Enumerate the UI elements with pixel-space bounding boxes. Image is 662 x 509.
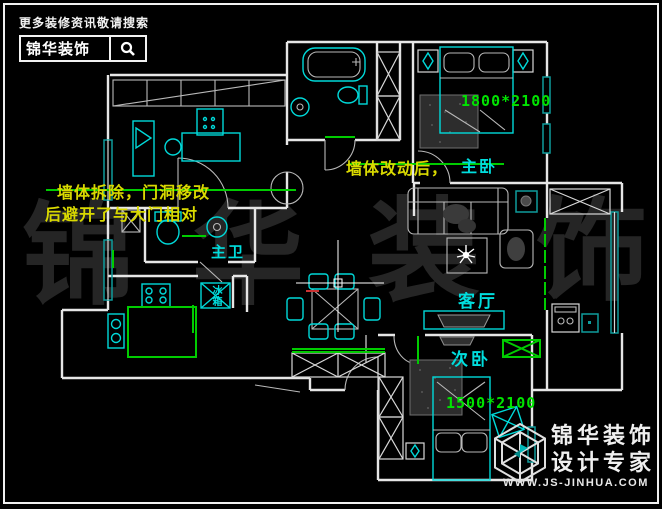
pillow (479, 53, 509, 72)
windows (104, 77, 618, 462)
tv-bedroom2 (440, 337, 474, 345)
search-logo-box: 锦华装饰 (19, 35, 147, 62)
dimension-second-bed: 1500*2100 (446, 394, 536, 412)
cube-logo-icon (488, 420, 552, 486)
bathroom-top (291, 48, 367, 116)
pillow (462, 433, 487, 452)
label-master-bathroom: 主卫 (211, 241, 245, 262)
chair (309, 274, 328, 289)
plant (457, 245, 475, 263)
label-fridge: 冰箱 (210, 285, 220, 307)
chair (364, 298, 380, 320)
bottom-slogan: 设计专家 (551, 445, 655, 477)
label-master-bedroom: 主卧 (461, 153, 497, 177)
label-living-room: 客厅 (458, 287, 498, 312)
entry (292, 353, 385, 377)
cad-floorplan-canvas[interactable]: 锦 华 装 饰 (0, 0, 662, 509)
new-wall-kitchen-island (128, 307, 196, 357)
pillow (444, 53, 474, 72)
stool (165, 139, 181, 155)
pillow (436, 433, 461, 452)
new-wall-shoe-cabinet (292, 349, 385, 352)
annotation-wall-change: 墙体改动后， (346, 155, 448, 179)
cooktop (142, 284, 170, 307)
annotation-demolish-line1: 墙体拆除，门洞移改 (57, 179, 210, 203)
top-logo-text: 锦华装饰 (21, 38, 109, 59)
top-tagline: 更多装修资讯敬请搜索 (19, 14, 149, 31)
window-balcony-right (611, 212, 618, 333)
dimension-master-bed: 1800*2100 (461, 92, 551, 110)
annotation-demolish-line2: 后避开了与大门相对 (45, 201, 198, 225)
closet-column (377, 52, 400, 140)
flower-pot (521, 196, 531, 206)
desk (182, 133, 240, 161)
basin (291, 98, 309, 116)
tv (438, 315, 490, 327)
magnifier-icon (111, 41, 145, 57)
desk-chair (197, 109, 223, 135)
toilet (338, 87, 358, 103)
washing-machine (552, 304, 579, 332)
label-second-bedroom: 次卧 (451, 345, 491, 370)
balcony (550, 189, 610, 332)
chair (287, 298, 303, 320)
window-kitchen-left (104, 240, 112, 300)
basin (207, 217, 227, 237)
